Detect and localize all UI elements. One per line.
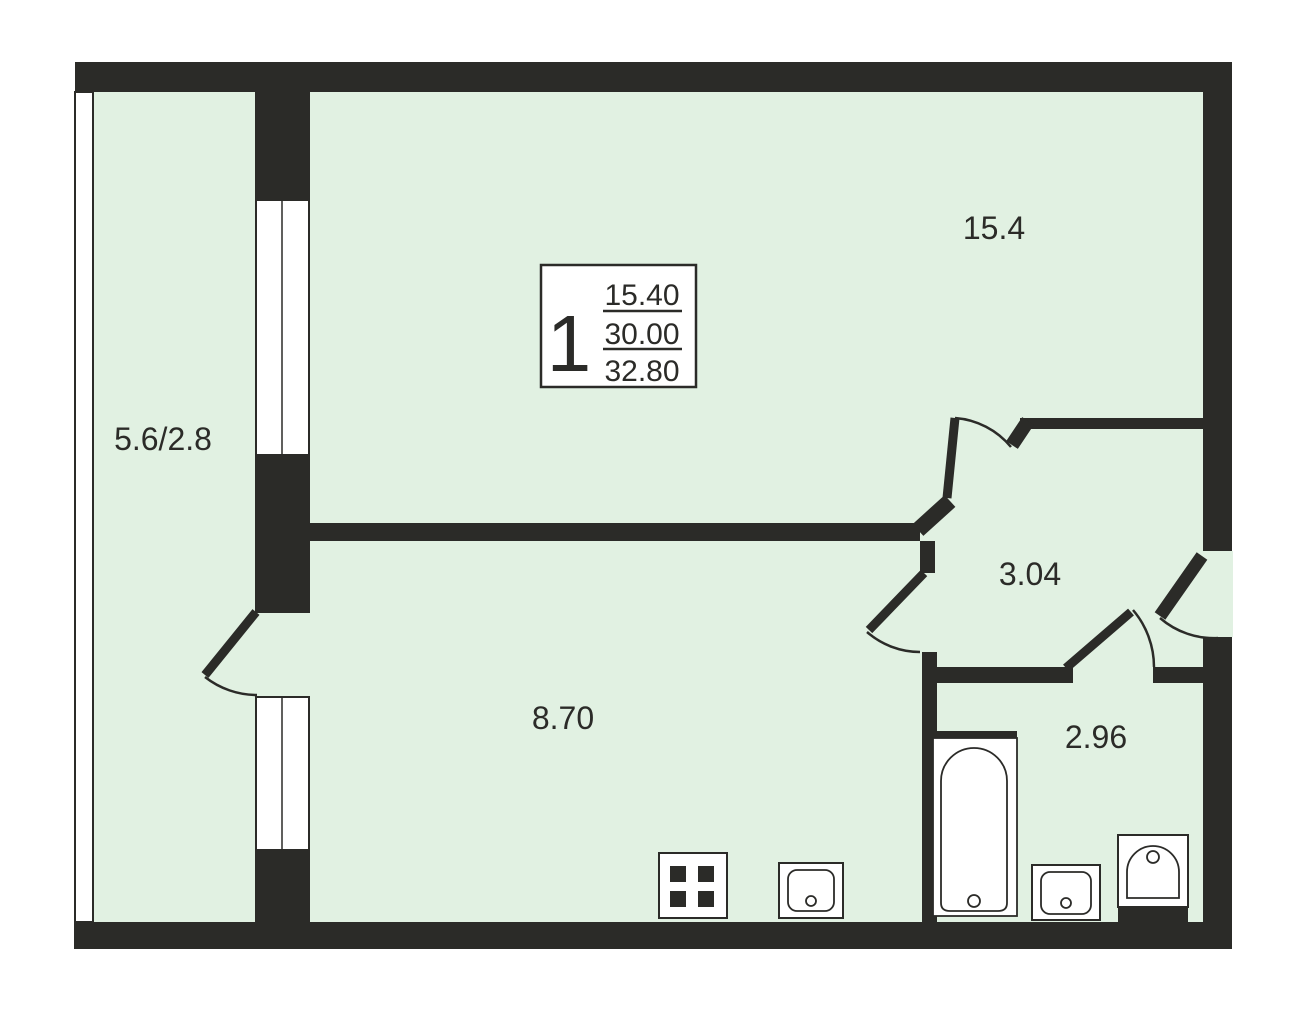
wall-segment [255, 92, 310, 200]
wall-segment [75, 62, 1232, 92]
stamp-total-area: 30.00 [604, 318, 679, 351]
kitchen-sink-icon [779, 863, 843, 918]
stamp-living-area: 15.40 [604, 279, 679, 312]
stove-burner [698, 891, 714, 907]
stamp-overall-area: 32.80 [604, 355, 679, 388]
entrance-opening-floor [1203, 551, 1233, 637]
bathroom-sink-icon [1032, 865, 1100, 920]
wall-segment [74, 922, 1232, 949]
bathtub-icon [933, 731, 1017, 916]
unit-info-stamp: 1 15.40 30.00 32.80 [541, 265, 696, 388]
room-area-label-kitchen: 8.70 [532, 700, 594, 736]
wall-segment [255, 455, 310, 613]
sink-drain [1061, 898, 1071, 908]
wall-segment [920, 541, 935, 573]
toilet-icon [1118, 835, 1188, 922]
wall-segment [1020, 418, 1203, 429]
wall-segment [937, 667, 1073, 683]
wall-segment [1153, 667, 1203, 683]
toilet-button [1147, 851, 1159, 863]
room-area-label-balcony: 5.6/2.8 [114, 421, 212, 457]
wall-segment [310, 523, 920, 541]
bathtub-basin [941, 748, 1007, 911]
sink-drain [806, 896, 816, 906]
stove-burner [698, 866, 714, 882]
wall-segment [255, 850, 310, 922]
stove-body [659, 853, 727, 918]
balcony-glazing-window [75, 92, 93, 922]
wall-segment [1203, 637, 1232, 922]
stove-icon [659, 853, 727, 918]
room-area-label-bathroom: 2.96 [1065, 719, 1127, 755]
bathtub-drain [968, 895, 980, 907]
stove-burner [670, 891, 686, 907]
wall-segment [1203, 92, 1232, 551]
floor-plan-page: 15.4 5.6/2.8 3.04 8.70 2.96 1 15.40 30.0… [0, 0, 1311, 1034]
stove-burner [670, 866, 686, 882]
room-area-label-hallway: 3.04 [999, 556, 1061, 592]
room-area-label-living: 15.4 [963, 210, 1025, 246]
floor-plan-canvas: 15.4 5.6/2.8 3.04 8.70 2.96 1 15.40 30.0… [0, 0, 1311, 1034]
stamp-rooms-count: 1 [547, 299, 592, 388]
